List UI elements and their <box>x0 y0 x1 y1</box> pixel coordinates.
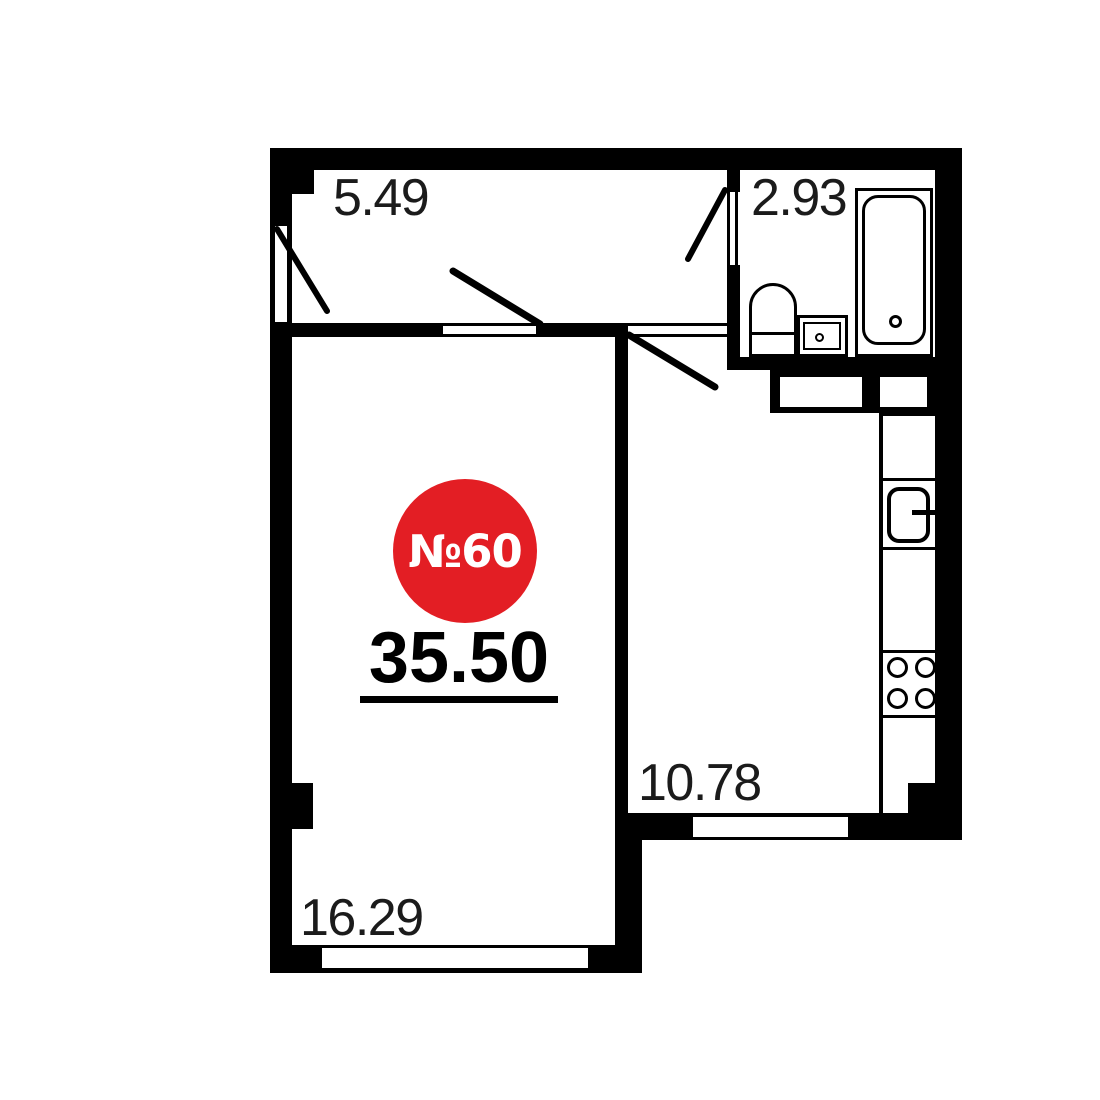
living-door-threshold-top <box>443 323 536 326</box>
hallway-wall-left-segment <box>270 323 443 337</box>
unit-number-label: №60 <box>408 525 522 578</box>
living-kitchen-divider-wall <box>615 334 628 973</box>
duct-shaft-1 <box>780 377 862 407</box>
bathroom-door-jamb-left <box>727 192 730 265</box>
stove-burner-icon <box>887 657 908 678</box>
toilet-tank-line <box>749 332 797 335</box>
kitchen-faucet-icon <box>912 510 938 515</box>
washbasin-drain <box>815 333 824 342</box>
bathroom-wall-lower <box>727 265 740 360</box>
apartment-floor-plan: №60 35.50 5.49 2.93 10.78 16.29 <box>0 0 1100 1100</box>
counter-divider-3 <box>879 650 935 653</box>
unit-number-badge: №60 <box>393 479 537 623</box>
left-wall-pilaster <box>292 783 313 829</box>
bathroom-door-swing <box>688 190 725 259</box>
stove-burner-icon <box>915 688 936 709</box>
total-area-label: 35.50 <box>347 622 571 694</box>
living-room-window <box>322 948 588 968</box>
kitchen-counter <box>879 413 935 813</box>
stove-burner-icon <box>887 688 908 709</box>
top-wall <box>270 148 962 170</box>
top-left-pilaster <box>292 170 314 194</box>
counter-divider-1 <box>879 478 935 481</box>
living-room-door-swing <box>453 271 540 324</box>
left-wall-upper <box>270 148 292 226</box>
counter-divider-2 <box>879 547 935 550</box>
toilet-icon <box>749 283 797 357</box>
kitchen-door-threshold-top <box>628 323 727 326</box>
kitchen-door-swing <box>629 335 715 387</box>
entrance-door-jamb-outer <box>270 226 275 322</box>
bathroom-wall-upper <box>727 168 740 192</box>
bathroom-door-jamb-right <box>735 192 738 265</box>
kitchen-door-threshold-bottom <box>628 334 727 337</box>
kitchen-window <box>693 817 848 837</box>
kitchen-area-label: 10.78 <box>638 757 761 809</box>
bathroom-area-label: 2.93 <box>751 172 846 224</box>
living-room-area-label: 16.29 <box>300 892 423 944</box>
stove-burner-icon <box>915 657 936 678</box>
living-door-threshold-bottom <box>443 334 536 337</box>
right-wall <box>935 148 962 840</box>
kitchen-sink-icon <box>887 487 930 543</box>
total-area-underline <box>360 696 558 703</box>
duct-shaft-2 <box>880 377 927 407</box>
bathtub-drain <box>889 315 902 328</box>
hallway-area-label: 5.49 <box>333 172 428 224</box>
counter-divider-4 <box>879 715 935 718</box>
left-wall-lower <box>270 322 292 973</box>
entrance-door-jamb-inner <box>287 226 292 322</box>
entrance-door-swing <box>277 229 327 311</box>
